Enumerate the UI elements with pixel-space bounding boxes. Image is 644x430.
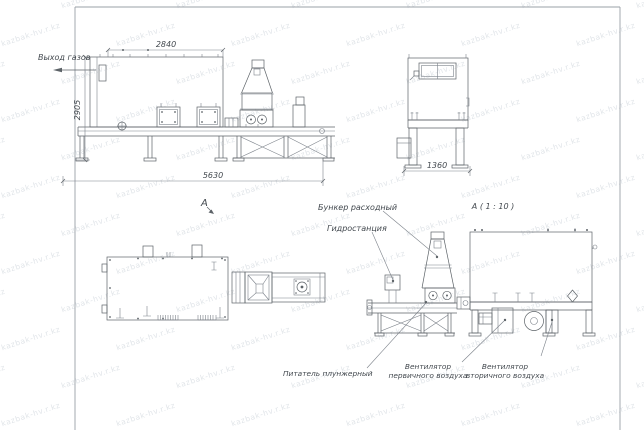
front-height-dimension: 2905 (73, 100, 82, 120)
detail-view-a (367, 211, 597, 368)
plan-view (102, 207, 325, 320)
drawing-sheet: kazbak-hv.r.kzkazbak-hv.r.kzkazbak-hv.r.… (0, 0, 644, 430)
front-elevation-view (53, 48, 335, 186)
technical-drawing: Выход газов 2840 2905 5630 1360 А А ( 1 … (0, 0, 644, 430)
annotations: Выход газов 2840 2905 5630 1360 А А ( 1 … (38, 40, 545, 380)
fan-primary-label-line2: первичного воздуха (389, 371, 468, 380)
fan-secondary-label-line1: Вентилятор (482, 362, 529, 371)
feeder-label: Питатель плунжерный (283, 369, 373, 378)
gas-outlet-label: Выход газов (38, 53, 91, 62)
front-total-length-dimension: 5630 (203, 171, 223, 180)
end-width-dimension: 1360 (427, 161, 447, 170)
end-view (397, 54, 472, 176)
hopper-label: Бункер расходный (318, 203, 397, 212)
fan-primary-label-line1: Вентилятор (405, 362, 452, 371)
front-top-width-dimension: 2840 (156, 40, 176, 49)
view-a-label: А (200, 198, 208, 209)
sheet-frame (75, 7, 620, 430)
detail-a-title: А ( 1 : 10 ) (471, 202, 514, 211)
fan-secondary-label-line2: вторичного воздуха (466, 371, 545, 380)
hydraulic-station-label: Гидростанция (327, 224, 387, 233)
